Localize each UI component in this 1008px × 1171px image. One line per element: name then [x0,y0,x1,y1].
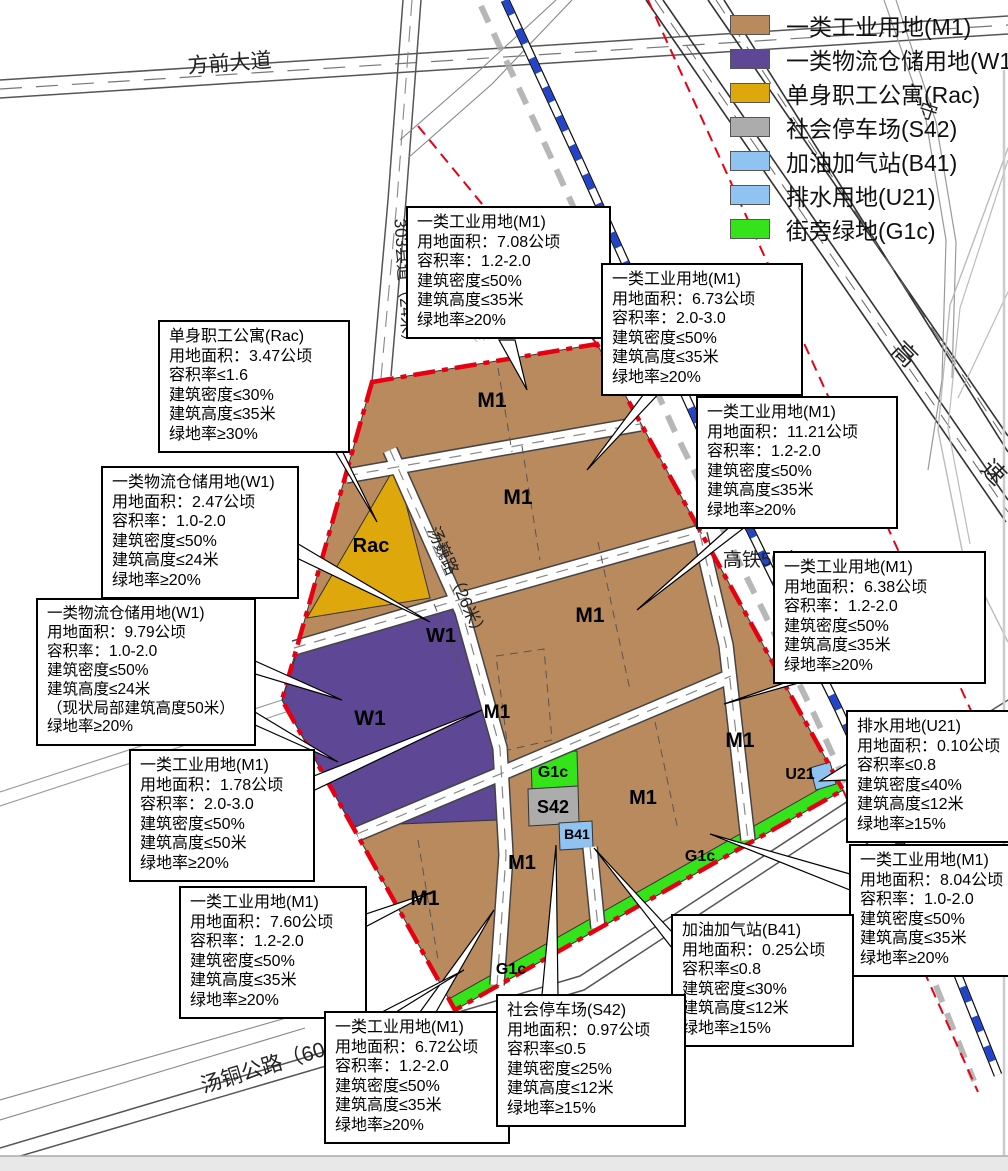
callout-line: 用地面积：8.04公顷 [860,871,1008,891]
legend-swatch-u21 [730,185,770,205]
label-parcel-m1: M1 [508,852,536,874]
legend: 一类工业用地(M1) 一类物流仓储用地(W1) 单身职工公寓(Rac) 社会停车… [730,8,1008,246]
callout-line: 容积率：1.2-2.0 [335,1057,501,1077]
callout-line: 用地面积：6.72公顷 [335,1038,501,1058]
callout-u21-010: 排水用地(U21)用地面积：0.10公顷容积率≤0.8建筑密度≤40%建筑高度≤… [846,710,1008,843]
callout-line: 一类物流仓储用地(W1) [112,473,290,493]
label-parcel-s42: S42 [537,797,569,817]
callout-line: 用地面积：6.38公顷 [784,578,977,598]
callout-line: 绿地率≥20% [417,311,602,331]
label-parcel-w1: W1 [426,625,456,647]
label-road-fangqian: 方前大道 [187,49,272,78]
callout-line: 建筑密度≤50% [612,329,794,349]
label-parcel-g1c: G1c [685,848,715,865]
callout-line: 用地面积：0.97公顷 [507,1021,677,1041]
legend-label-w1: 一类物流仓储用地(W1) [786,42,1008,76]
callout-line: 一类工业用地(M1) [140,756,306,776]
callout-line: 一类物流仓储用地(W1) [47,605,247,624]
label-parcel-b41: B41 [564,826,590,842]
callout-rac-347: 单身职工公寓(Rac)用地面积：3.47公顷容积率≤1.6建筑密度≤30%建筑高… [158,320,350,453]
callout-line: 绿地率≥20% [612,368,794,388]
legend-label-s42: 社会停车场(S42) [786,110,957,144]
legend-label-g1c: 街旁绿地(G1c) [786,212,936,246]
callout-line: 建筑密度≤50% [47,662,247,681]
callout-line: 容积率：1.2-2.0 [417,252,602,272]
label-parcel-u21: U21 [785,766,814,783]
callout-line: 建筑密度≤50% [112,532,290,552]
callout-line: 建筑高度≤50米 [140,834,306,854]
callout-line: 建筑高度≤12米 [857,795,1008,815]
callout-m1-638: 一类工业用地(M1)用地面积：6.38公顷容积率：1.2-2.0建筑密度≤50%… [773,551,986,684]
label-parcel-m1: M1 [629,787,657,809]
callout-line: 加油加气站(B41) [682,921,845,941]
callout-line: 绿地率≥30% [169,425,341,445]
callout-line: 用地面积：7.60公顷 [190,913,358,933]
label-parcel-m1: M1 [575,604,604,627]
callout-m1-1121: 一类工业用地(M1)用地面积：11.21公顷容积率：1.2-2.0建筑密度≤50… [696,396,898,529]
callout-m1-708: 一类工业用地(M1)用地面积：7.08公顷容积率：1.2-2.0建筑密度≤50%… [406,206,611,339]
callout-line: 绿地率≥15% [682,1019,845,1039]
legend-row-m1: 一类工业用地(M1) [730,8,1008,42]
callout-line: 一类工业用地(M1) [860,851,1008,871]
legend-label-b41: 加油加气站(B41) [786,144,957,178]
callout-line: 建筑高度≤35米 [860,929,1008,949]
callout-line: 一类工业用地(M1) [190,893,358,913]
callout-line: 用地面积：1.78公顷 [140,776,306,796]
callout-line: 建筑密度≤50% [860,910,1008,930]
label-parcel-rac: Rac [353,535,390,557]
callout-line: 容积率：1.2-2.0 [190,932,358,952]
callout-line: 容积率：1.0-2.0 [47,643,247,662]
legend-swatch-m1 [730,15,770,35]
callout-line: 建筑密度≤50% [707,462,889,482]
legend-label-rac: 单身职工公寓(Rac) [786,76,980,110]
callout-line: 绿地率≥15% [507,1099,677,1119]
callout-line: 建筑高度≤35米 [335,1096,501,1116]
callout-line: 一类工业用地(M1) [417,213,602,233]
callout-line: 建筑高度≤35米 [190,971,358,991]
callout-line: 一类工业用地(M1) [784,558,977,578]
callout-line: 容积率：2.0-3.0 [612,309,794,329]
callout-w1-247: 一类物流仓储用地(W1)用地面积：2.47公顷容积率：1.0-2.0建筑密度≤5… [101,466,299,599]
legend-swatch-s42 [730,117,770,137]
callout-m1-760: 一类工业用地(M1)用地面积：7.60公顷容积率：1.2-2.0建筑密度≤50%… [179,886,367,1019]
callout-line: 建筑高度≤35米 [612,348,794,368]
callout-m1-804: 一类工业用地(M1)用地面积：8.04公顷容积率：1.0-2.0建筑密度≤50%… [849,844,1008,977]
callout-line: 建筑密度≤50% [190,952,358,972]
callout-m1-178: 一类工业用地(M1)用地面积：1.78公顷容积率：2.0-3.0建筑密度≤50%… [129,749,315,882]
legend-label-m1: 一类工业用地(M1) [786,8,971,42]
callout-line: 建筑高度≤35米 [784,636,977,656]
label-parcel-g1c: G1c [496,961,526,978]
callout-line: 建筑密度≤30% [169,386,341,406]
callout-line: 绿地率≥20% [707,501,889,521]
callout-line: 用地面积：6.73公顷 [612,290,794,310]
callout-m1-673: 一类工业用地(M1)用地面积：6.73公顷容积率：2.0-3.0建筑密度≤50%… [601,263,803,396]
label-parcel-m1: M1 [484,702,511,723]
callout-line: 用地面积：9.79公顷 [47,624,247,643]
callout-line: 建筑密度≤30% [682,980,845,1000]
callout-line: 绿地率≥20% [190,991,358,1011]
callout-m1-672: 一类工业用地(M1)用地面积：6.72公顷容积率：1.2-2.0建筑密度≤50%… [324,1011,510,1144]
label-parcel-m1: M1 [725,729,754,752]
callout-line: 一类工业用地(M1) [612,270,794,290]
callout-line: 一类工业用地(M1) [707,403,889,423]
callout-line: 用地面积：2.47公顷 [112,493,290,513]
callout-line: 容积率≤0.5 [507,1040,677,1060]
callout-line: 容积率≤0.8 [857,756,1008,776]
callout-line: 一类工业用地(M1) [335,1018,501,1038]
label-parcel-w1: W1 [354,707,386,730]
callout-line: 排水用地(U21) [857,717,1008,737]
callout-line: 社会停车场(S42) [507,1001,677,1021]
callout-line: 用地面积：3.47公顷 [169,347,341,367]
legend-row-s42: 社会停车场(S42) [730,110,1008,144]
callout-line: 建筑密度≤25% [507,1060,677,1080]
legend-label-u21: 排水用地(U21) [786,178,936,212]
callout-line: 建筑高度≤24米 [112,551,290,571]
legend-row-rac: 单身职工公寓(Rac) [730,76,1008,110]
callout-line: 容积率≤0.8 [682,960,845,980]
label-parcel-m1: M1 [410,887,439,910]
legend-swatch-g1c [730,219,770,239]
legend-row-u21: 排水用地(U21) [730,178,1008,212]
callout-w1-979: 一类物流仓储用地(W1)用地面积：9.79公顷容积率：1.0-2.0建筑密度≤5… [36,598,256,746]
callout-line: 建筑密度≤50% [140,815,306,835]
callout-line: 绿地率≥20% [860,949,1008,969]
callout-line: 建筑高度≤24米 [47,681,247,700]
callout-line: 建筑密度≤50% [784,617,977,637]
legend-row-b41: 加油加气站(B41) [730,144,1008,178]
callout-line: 用地面积：0.10公顷 [857,737,1008,757]
callout-b41-025: 加油加气站(B41)用地面积：0.25公顷容积率≤0.8建筑密度≤30%建筑高度… [671,914,854,1047]
land-use-planning-map: M1 M1 M1 M1 M1 M1 M1 M1 W1 W1 Rac G1c G1… [0,0,1008,1171]
callout-line: 绿地率≥20% [784,656,977,676]
callout-line: 建筑高度≤35米 [169,405,341,425]
callout-line: 绿地率≥20% [335,1116,501,1136]
callout-line: 容积率：1.0-2.0 [860,890,1008,910]
label-parcel-m1: M1 [503,486,532,509]
callout-line: 用地面积：7.08公顷 [417,233,602,253]
callout-line: （现状局部建筑高度50米） [47,700,247,719]
callout-line: 建筑高度≤12米 [507,1079,677,1099]
callout-line: 建筑密度≤50% [417,272,602,292]
callout-line: 单身职工公寓(Rac) [169,327,341,347]
callout-line: 绿地率≥20% [47,718,247,737]
callout-line: 绿地率≥15% [857,815,1008,835]
callout-line: 建筑密度≤50% [335,1077,501,1097]
callout-line: 建筑高度≤35米 [417,291,602,311]
callout-line: 建筑高度≤12米 [682,999,845,1019]
callout-line: 容积率：1.2-2.0 [707,442,889,462]
callout-line: 容积率：2.0-3.0 [140,795,306,815]
callout-line: 用地面积：0.25公顷 [682,941,845,961]
callout-line: 建筑密度≤40% [857,776,1008,796]
legend-swatch-b41 [730,151,770,171]
callout-line: 用地面积：11.21公顷 [707,423,889,443]
callout-line: 建筑高度≤35米 [707,481,889,501]
legend-row-g1c: 街旁绿地(G1c) [730,212,1008,246]
callout-line: 容积率≤1.6 [169,366,341,386]
legend-row-w1: 一类物流仓储用地(W1) [730,42,1008,76]
callout-line: 容积率：1.0-2.0 [112,512,290,532]
label-parcel-m1: M1 [477,389,506,412]
label-parcel-g1c: G1c [538,764,568,781]
legend-swatch-rac [730,83,770,103]
callout-line: 绿地率≥20% [112,571,290,591]
legend-swatch-w1 [730,49,770,69]
callout-s42-097: 社会停车场(S42)用地面积：0.97公顷容积率≤0.5建筑密度≤25%建筑高度… [496,994,686,1127]
callout-line: 容积率：1.2-2.0 [784,597,977,617]
callout-line: 绿地率≥20% [140,854,306,874]
